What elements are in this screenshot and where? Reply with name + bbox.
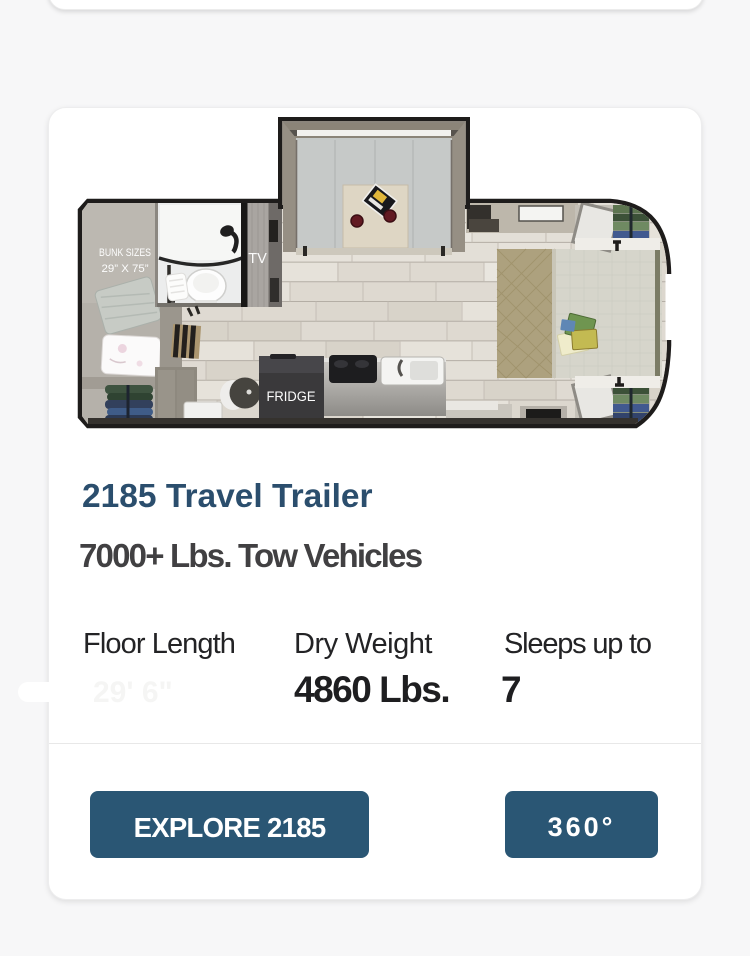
svg-text:TV: TV <box>248 251 267 267</box>
svg-text:FRIDGE: FRIDGE <box>267 389 316 404</box>
svg-text:BUNK SIZES: BUNK SIZES <box>99 247 151 259</box>
svg-text:29” X 75”: 29” X 75” <box>102 263 149 275</box>
